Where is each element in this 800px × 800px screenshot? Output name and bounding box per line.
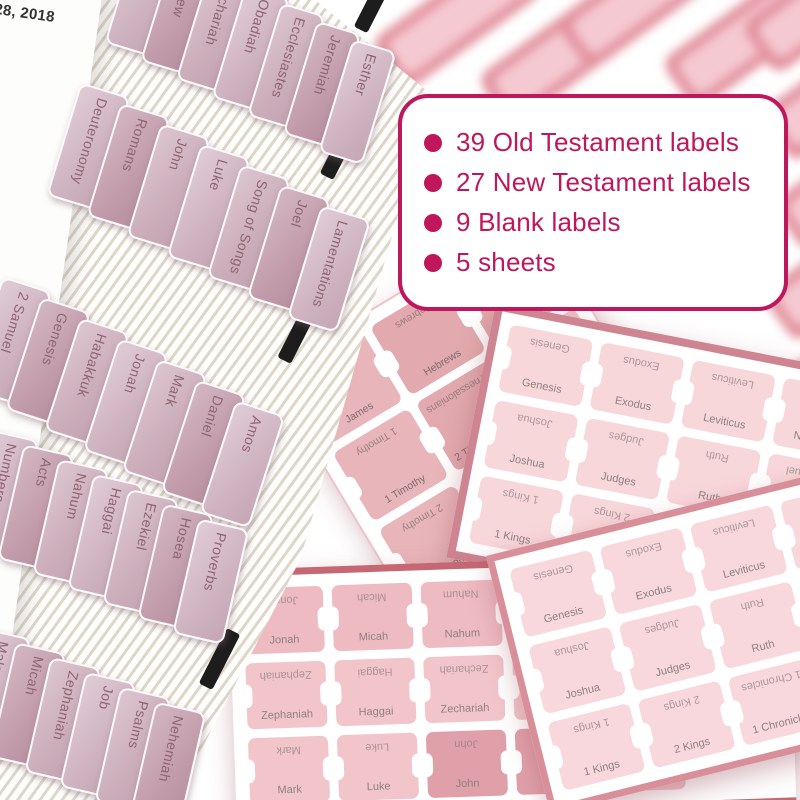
feature-text: 9 Blank labels <box>456 207 621 238</box>
label-notch <box>546 744 564 770</box>
label-notch <box>341 474 365 501</box>
feature-item: 9 Blank labels <box>424 207 762 238</box>
label-text-mirrored: Genesis <box>529 335 571 353</box>
label-notch <box>508 591 526 617</box>
label-text-mirrored: John <box>454 737 478 749</box>
bible-tab-label: Proverbs <box>190 531 230 639</box>
sticker-label: Micah Micah <box>332 583 414 652</box>
sticker-label: Leviticus Leviticus <box>681 360 776 443</box>
label-text-mirrored: Leviticus <box>710 371 754 390</box>
label-text-mirrored: 2 Kings <box>662 693 700 713</box>
label-text-mirrored: 1 Timothy <box>354 425 398 457</box>
label-text: Leviticus <box>722 560 766 581</box>
label-notch <box>420 753 434 777</box>
label-text-mirrored: Luke <box>365 740 389 752</box>
label-text: Zechariah <box>440 703 489 716</box>
label-text: Joshua <box>564 682 601 701</box>
sticker-label: 2 Kings 2 Kings <box>637 680 735 768</box>
label-text-mirrored: Nahum <box>443 587 479 599</box>
feature-text: 5 sheets <box>456 247 556 278</box>
bullet-icon <box>424 134 442 152</box>
label-notch <box>481 420 498 446</box>
label-text-mirrored: Ruth <box>705 448 730 463</box>
label-notch <box>242 759 256 783</box>
sticker-label: Nahum Nahum <box>421 579 503 648</box>
sticker-label: Genesis Genesis <box>509 550 607 638</box>
label-text: Hebrews <box>422 347 463 377</box>
sticker-label: 1 Chronicles 1 Chronicles <box>728 658 800 746</box>
label-notch <box>239 684 253 708</box>
label-text: Joshua <box>508 454 545 472</box>
bible-tab-label: Nehemiah <box>147 714 187 800</box>
label-notch <box>417 678 431 702</box>
label-text-mirrored: Micah <box>357 590 387 602</box>
feature-item: 39 Old Testament labels <box>424 127 762 158</box>
label-text: 2 Kings <box>673 737 711 757</box>
label-text-mirrored: Judges <box>608 429 645 447</box>
features-callout: 39 Old Testament labels 27 New Testament… <box>398 94 788 311</box>
sticker-label: Ruth Ruth <box>709 581 800 669</box>
label-text: Leviticus <box>702 413 746 432</box>
label-text: Mark <box>277 785 302 797</box>
sticker-label: Haggai Haggai <box>334 658 416 727</box>
label-notch <box>414 603 428 627</box>
label-text: James <box>343 400 375 425</box>
label-text: Judges <box>654 660 691 679</box>
sticker-label: Leviticus Leviticus <box>690 505 788 593</box>
sticker-label: Judges Judges <box>618 604 716 692</box>
sticker-label: Genesis Genesis <box>498 324 593 407</box>
label-text: 1 Kings <box>493 529 531 547</box>
label-text: Genesis <box>543 605 585 625</box>
label-text-mirrored: 2 Timothy <box>400 501 444 533</box>
label-text-mirrored: 1 Kings <box>501 487 539 505</box>
label-text-mirrored: Ruth <box>740 595 765 611</box>
bullet-icon <box>424 254 442 272</box>
label-text-mirrored: Exodus <box>622 353 660 371</box>
label-text: 1 Timothy <box>383 473 427 505</box>
label-text: Ruth <box>751 639 776 655</box>
label-text-mirrored: 2 Kings <box>593 505 631 523</box>
product-photo-bible-tabs: James James Hebrews Hebrews Philemon Phi… <box>0 0 800 800</box>
label-text-mirrored: Zechariah <box>439 662 488 675</box>
label-text-mirrored: Genesis <box>532 562 574 582</box>
feature-text: 39 Old Testament labels <box>456 127 739 158</box>
label-text-mirrored: Mark <box>276 744 301 756</box>
label-text: Micah <box>359 631 389 643</box>
label-notch <box>495 345 512 371</box>
label-notch <box>325 606 339 630</box>
sticker-label: Joshua Joshua <box>528 626 626 714</box>
label-text: Jonah <box>269 635 299 647</box>
label-notch <box>466 496 483 522</box>
label-text: Judges <box>600 471 637 489</box>
sticker-label: Zechariah Zechariah <box>423 654 505 723</box>
label-text: Numbers <box>793 430 800 449</box>
label-notch <box>328 681 342 705</box>
label-text-mirrored: 1 Chronicles <box>741 667 800 692</box>
label-text-mirrored: Zephaniah <box>260 668 312 681</box>
label-text: 1 Chronicles <box>751 711 800 736</box>
label-notch <box>331 756 345 780</box>
label-text: John <box>456 778 480 790</box>
sticker-label: 1 Kings 1 Kings <box>547 703 645 791</box>
sticker-label: Judges Judges <box>575 418 670 501</box>
bullet-icon <box>424 214 442 232</box>
feature-item: 27 New Testament labels <box>424 167 762 198</box>
label-text: Haggai <box>358 706 393 718</box>
bullet-icon <box>424 174 442 192</box>
label-text: Luke <box>367 781 391 793</box>
label-text: Genesis <box>521 378 563 396</box>
label-text-mirrored: 1 Kings <box>572 715 610 735</box>
feature-text: 27 New Testament labels <box>456 167 751 198</box>
label-notch <box>508 750 522 774</box>
sticker-label: Joshua Joshua <box>483 400 578 483</box>
sticker-label: Exodus Exodus <box>589 342 684 425</box>
sticker-label: Zephaniah Zephaniah <box>245 661 327 730</box>
label-text-mirrored: Leviticus <box>711 516 755 537</box>
label-text: Zephaniah <box>261 709 313 722</box>
label-text: Exodus <box>614 396 652 414</box>
page-date-text: ust 28, 2018 <box>0 0 56 26</box>
label-text-mirrored: Joshua <box>553 639 590 658</box>
label-text-mirrored: Joshua <box>517 411 554 429</box>
label-text-mirrored: Haggai <box>357 665 392 677</box>
sticker-label: Numbers Numbers <box>772 378 800 461</box>
sticker-label: John John <box>426 729 508 798</box>
sticker-label: Luke Luke <box>337 733 419 800</box>
label-text-mirrored: Judges <box>644 616 681 635</box>
label-text: Exodus <box>635 583 673 603</box>
label-text: 1 Kings <box>583 759 621 779</box>
feature-item: 5 sheets <box>424 247 762 278</box>
label-text: Nahum <box>444 628 480 640</box>
label-text-mirrored: Exodus <box>624 540 662 560</box>
label-notch <box>527 667 545 693</box>
sticker-label: Exodus Exodus <box>599 527 697 615</box>
sticker-label: Mark Mark <box>248 736 330 800</box>
